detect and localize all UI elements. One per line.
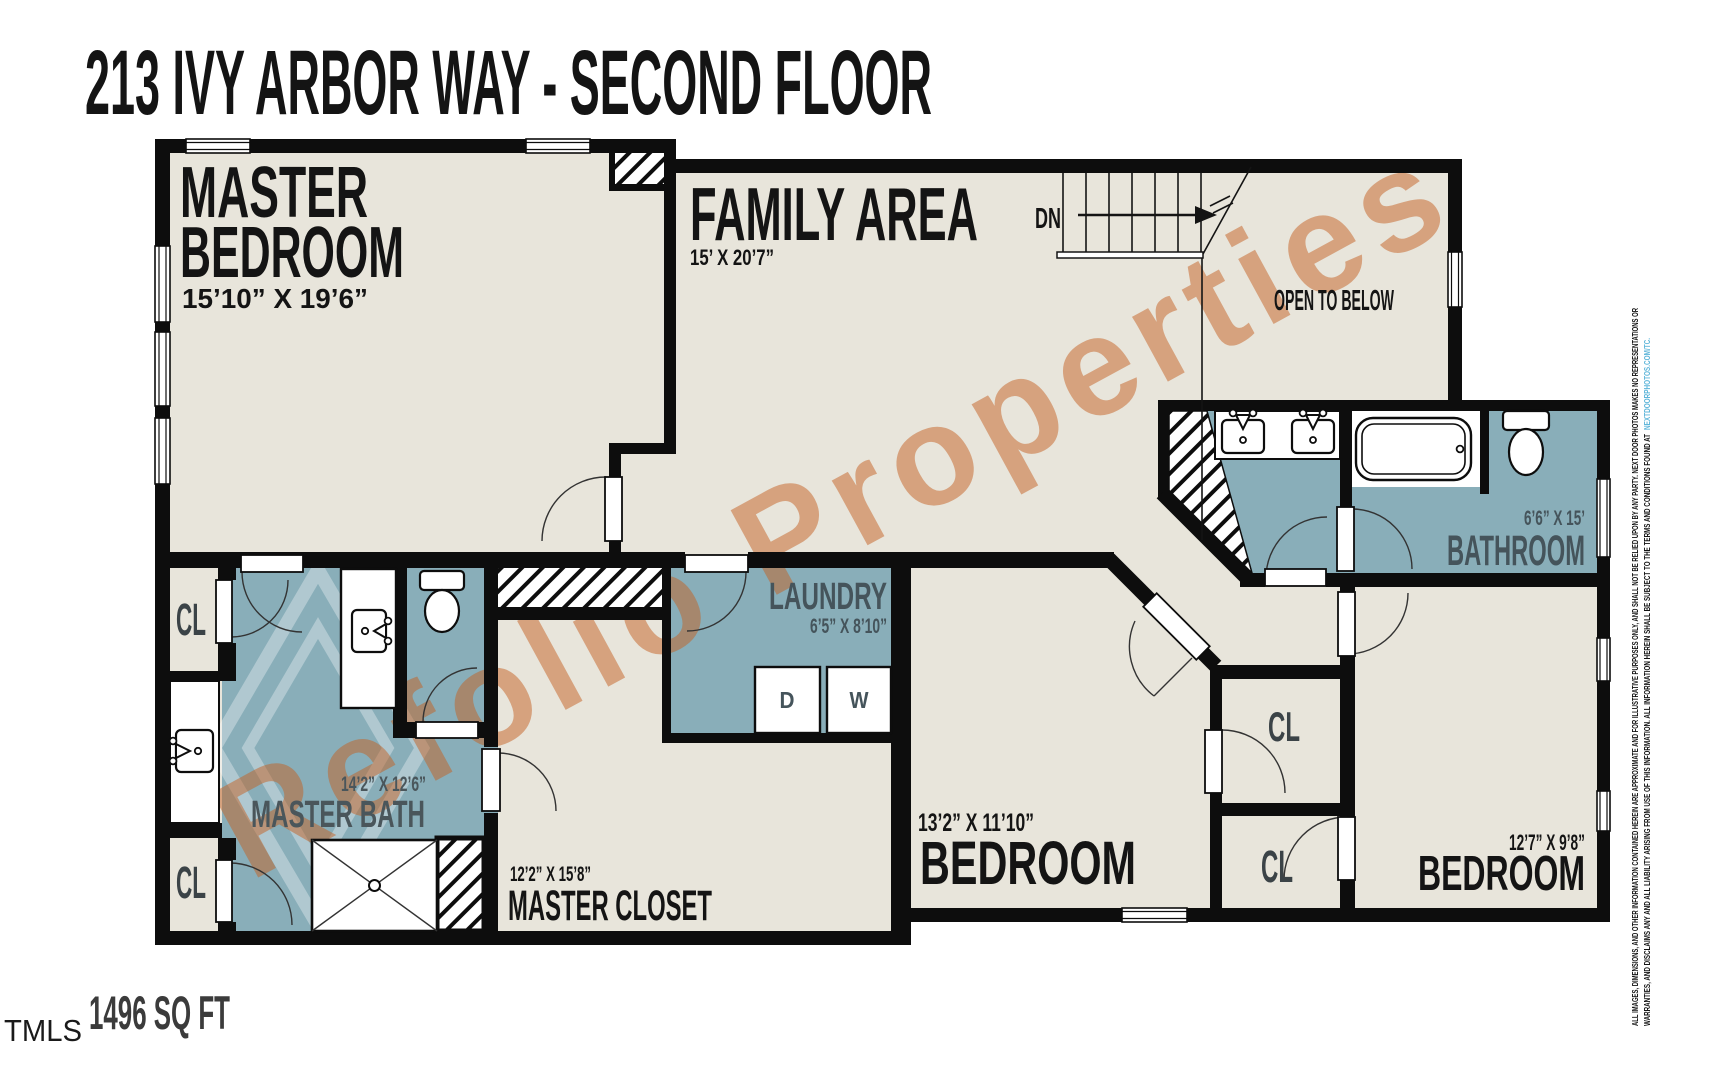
svg-text:213 IVY ARBOR WAY - SECOND FLO: 213 IVY ARBOR WAY - SECOND FLOOR (85, 32, 932, 134)
svg-text:OPEN TO BELOW: OPEN TO BELOW (1274, 285, 1394, 317)
svg-text:WARRANTIES, AND DISCLAIMS ANY: WARRANTIES, AND DISCLAIMS ANY AND ALL LI… (1643, 434, 1652, 1026)
svg-text:6’5” X 8’10”: 6’5” X 8’10” (810, 615, 887, 638)
svg-text:FAMILY AREA: FAMILY AREA (690, 172, 978, 256)
svg-text:1496 SQ FT: 1496 SQ FT (89, 986, 230, 1039)
svg-text:CL: CL (176, 857, 206, 908)
svg-text:BEDROOM: BEDROOM (180, 213, 404, 293)
svg-text:LAUNDRY: LAUNDRY (769, 576, 887, 618)
svg-text:BEDROOM: BEDROOM (1418, 847, 1585, 901)
svg-text:CL: CL (176, 594, 206, 645)
svg-text:CL: CL (1261, 841, 1293, 892)
svg-text:NEXTDOORPHOTOS.COM/TC.: NEXTDOORPHOTOS.COM/TC. (1643, 338, 1652, 430)
svg-text:BATHROOM: BATHROOM (1447, 527, 1585, 575)
svg-text:14’2” X 12’6”: 14’2” X 12’6” (341, 773, 426, 796)
svg-text:BEDROOM: BEDROOM (920, 829, 1136, 897)
svg-text:MASTER BATH: MASTER BATH (251, 794, 425, 836)
svg-text:DN: DN (1035, 203, 1061, 235)
svg-text:TMLS: TMLS (4, 1013, 82, 1048)
svg-text:MASTER CLOSET: MASTER CLOSET (508, 882, 712, 930)
svg-text:ALL IMAGES, DIMENSIONS, AND OT: ALL IMAGES, DIMENSIONS, AND OTHER INFORM… (1631, 308, 1640, 1026)
svg-text:15’ X 20’7”: 15’ X 20’7” (690, 245, 774, 270)
svg-text:D: D (780, 687, 795, 713)
svg-text:15’10” X 19’6”: 15’10” X 19’6” (182, 283, 368, 314)
svg-text:W: W (850, 687, 869, 713)
svg-text:CL: CL (1268, 703, 1300, 750)
